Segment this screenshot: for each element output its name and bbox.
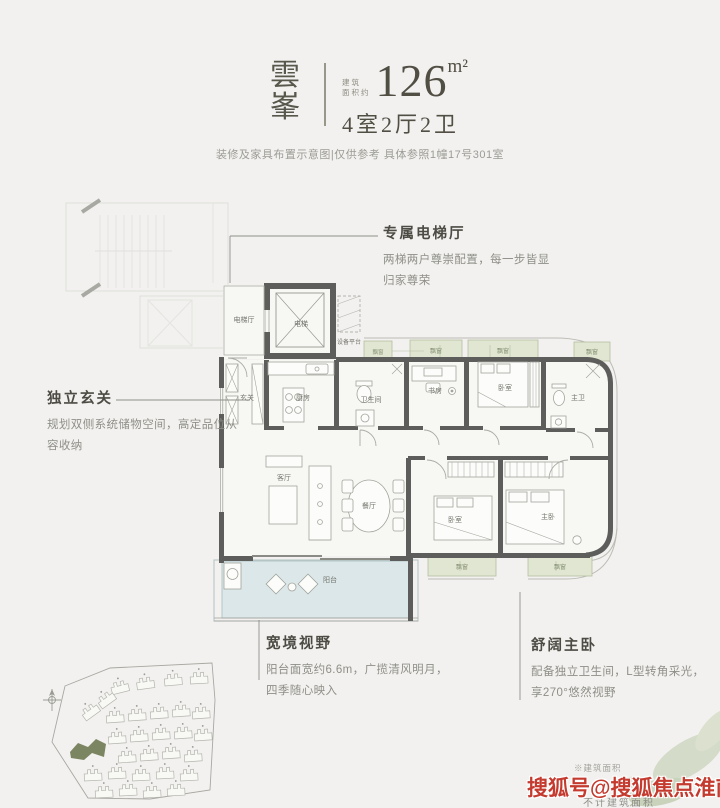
annotation-view-title: 宽境视野	[266, 632, 448, 653]
label-dining-room: 餐厅	[362, 501, 376, 510]
header-divider	[324, 63, 326, 126]
label-living-room: 客厅	[277, 473, 291, 482]
unit-layout: 4室2厅2卫	[342, 107, 468, 139]
disclaimer-text: 装修及家具布置示意图|仅供参考 具体参照1幢17号301室	[0, 146, 720, 162]
site-plan	[43, 663, 215, 799]
annotation-master-desc: 配备独立卫生间，L型转角采光，享270°悠然视野	[531, 662, 704, 704]
label-bay-3: 飘窗	[497, 347, 509, 355]
section-cut-marks	[82, 200, 100, 296]
area-label: 建筑 面积约	[342, 78, 371, 98]
annotation-view-desc: 阳台面宽约6.6m，广揽清风明月，四季随心映入	[266, 660, 448, 702]
label-equipment-platform: 设备平台	[337, 338, 361, 346]
label-bay-4: 飘窗	[586, 348, 598, 356]
annotation-view: 宽境视野 阳台面宽约6.6m，广揽清风明月，四季随心映入	[266, 632, 448, 702]
label-bay-2: 飘窗	[430, 347, 442, 355]
area-label-line1: 建筑	[342, 78, 371, 88]
label-master-bathroom: 主卫	[571, 393, 585, 402]
annotation-foyer-title: 独立玄关	[47, 387, 237, 408]
label-elevator-hall: 电梯厅	[234, 315, 255, 324]
label-bay-5: 飘窗	[456, 563, 468, 571]
label-elevator: 电梯	[294, 319, 308, 328]
site-buildings	[77, 668, 212, 798]
label-balcony: 阳台	[323, 575, 337, 584]
project-name: 雲 峯	[270, 60, 300, 124]
unit-spec: 建筑 面积约 126m² 4室2厅2卫	[342, 54, 468, 139]
project-name-char2: 峯	[270, 92, 300, 124]
label-foyer: 玄关	[240, 393, 254, 402]
label-bay-6: 飘窗	[554, 563, 566, 571]
annotation-elevator-hall: 专属电梯厅 两梯两户尊崇配置，每一步皆显归家尊荣	[383, 222, 550, 292]
label-kitchen: 厨房	[296, 393, 310, 402]
balcony-area	[222, 561, 412, 618]
label-bedroom-top: 卧室	[498, 383, 512, 392]
annotation-master-title: 舒阔主卧	[531, 634, 704, 655]
label-bay-1: 飘窗	[372, 348, 384, 356]
area-label-line2: 面积约	[342, 88, 371, 98]
highlighted-building	[70, 739, 106, 760]
label-study: 书房	[428, 386, 442, 395]
project-name-char1: 雲	[270, 60, 300, 92]
label-bathroom: 卫生间	[361, 395, 382, 404]
label-bedroom-bottom: 卧室	[448, 515, 462, 524]
label-master-bedroom: 主卧	[541, 512, 555, 521]
annotation-foyer-desc: 规划双侧系统储物空间，高定品位从容收纳	[47, 415, 237, 457]
watermark-text: 搜狐号@搜狐焦点淮南站	[527, 772, 720, 802]
annotation-master-bedroom: 舒阔主卧 配备独立卫生间，L型转角采光，享270°悠然视野	[531, 634, 704, 704]
area-unit: m²	[448, 56, 468, 78]
area-value: 126	[376, 54, 448, 107]
neighbor-unit-ghost	[66, 203, 228, 348]
compass-icon	[43, 689, 61, 711]
annotation-foyer: 独立玄关 规划双侧系统储物空间，高定品位从容收纳	[47, 387, 237, 457]
floorplan-poster: 电梯厅 电梯 设备平台 玄关 厨房 卫生间 书房 卧室 主卫 客厅 餐厅 卧室 …	[0, 0, 720, 808]
annotation-elevator-desc: 两梯两户尊崇配置，每一步皆显归家尊荣	[383, 250, 550, 292]
annotation-elevator-title: 专属电梯厅	[383, 222, 550, 243]
